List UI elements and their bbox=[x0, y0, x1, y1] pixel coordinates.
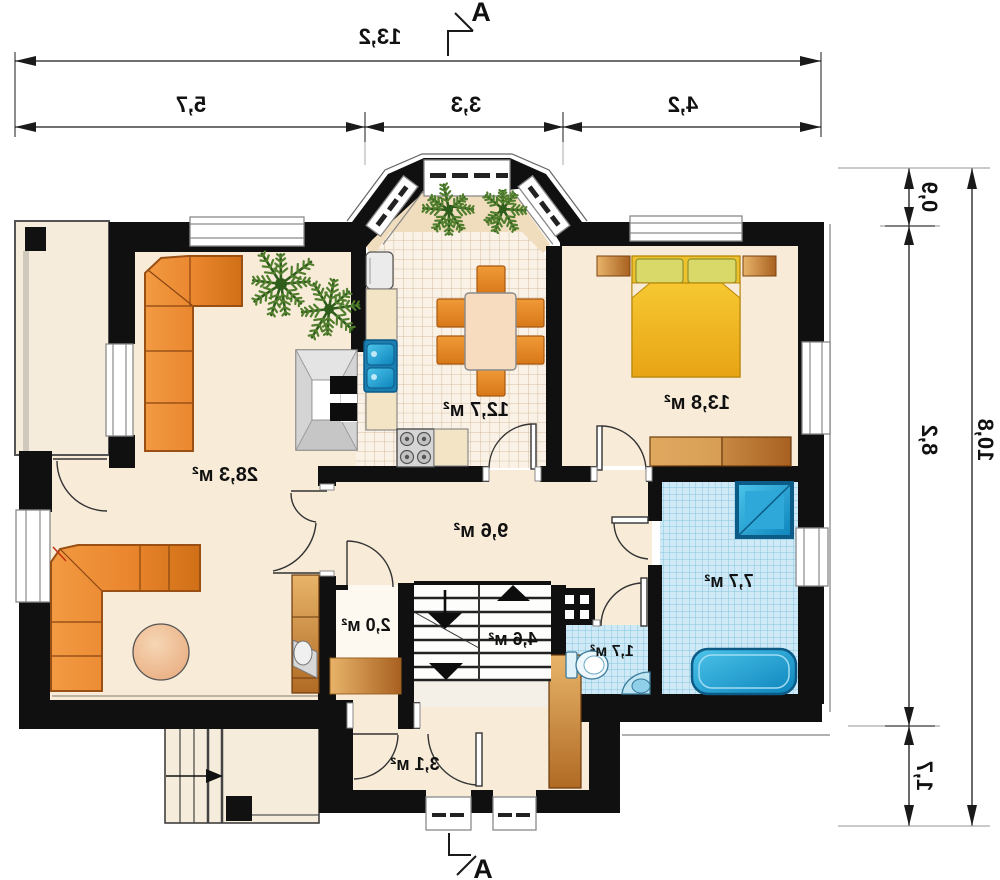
svg-text:3,3: 3,3 bbox=[451, 92, 482, 117]
svg-text:13,8 м²: 13,8 м² bbox=[664, 392, 730, 414]
svg-text:5,7: 5,7 bbox=[176, 92, 207, 117]
svg-text:13,2: 13,2 bbox=[359, 24, 402, 49]
svg-text:A: A bbox=[473, 854, 493, 880]
svg-text:0,9: 0,9 bbox=[917, 182, 942, 213]
svg-text:9,6 м²: 9,6 м² bbox=[453, 520, 508, 542]
svg-text:4,2: 4,2 bbox=[668, 92, 699, 117]
svg-text:3,1 м²: 3,1 м² bbox=[390, 754, 439, 774]
svg-text:1,7 м²: 1,7 м² bbox=[590, 643, 634, 660]
svg-text:10,8: 10,8 bbox=[973, 419, 998, 462]
svg-text:28,3 м²: 28,3 м² bbox=[192, 464, 258, 486]
svg-text:1,7: 1,7 bbox=[912, 761, 937, 792]
svg-text:4,6 м²: 4,6 м² bbox=[488, 629, 537, 649]
svg-text:7,7 м²: 7,7 м² bbox=[704, 571, 753, 591]
svg-text:2,0 м²: 2,0 м² bbox=[341, 615, 390, 635]
svg-text:12,7 м²: 12,7 м² bbox=[443, 399, 509, 421]
svg-text:8,2: 8,2 bbox=[917, 425, 942, 456]
svg-text:A: A bbox=[471, 0, 491, 27]
